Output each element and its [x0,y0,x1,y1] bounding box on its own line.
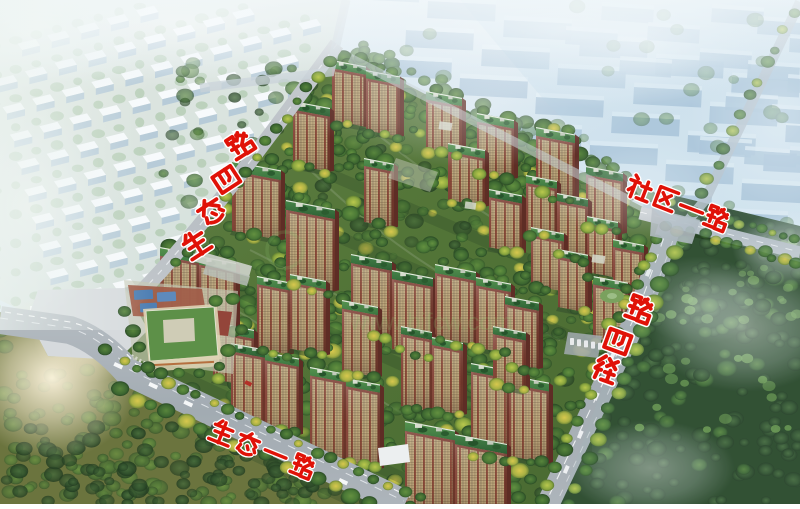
svg-text:www.bjfcw.com: www.bjfcw.com [349,309,513,336]
